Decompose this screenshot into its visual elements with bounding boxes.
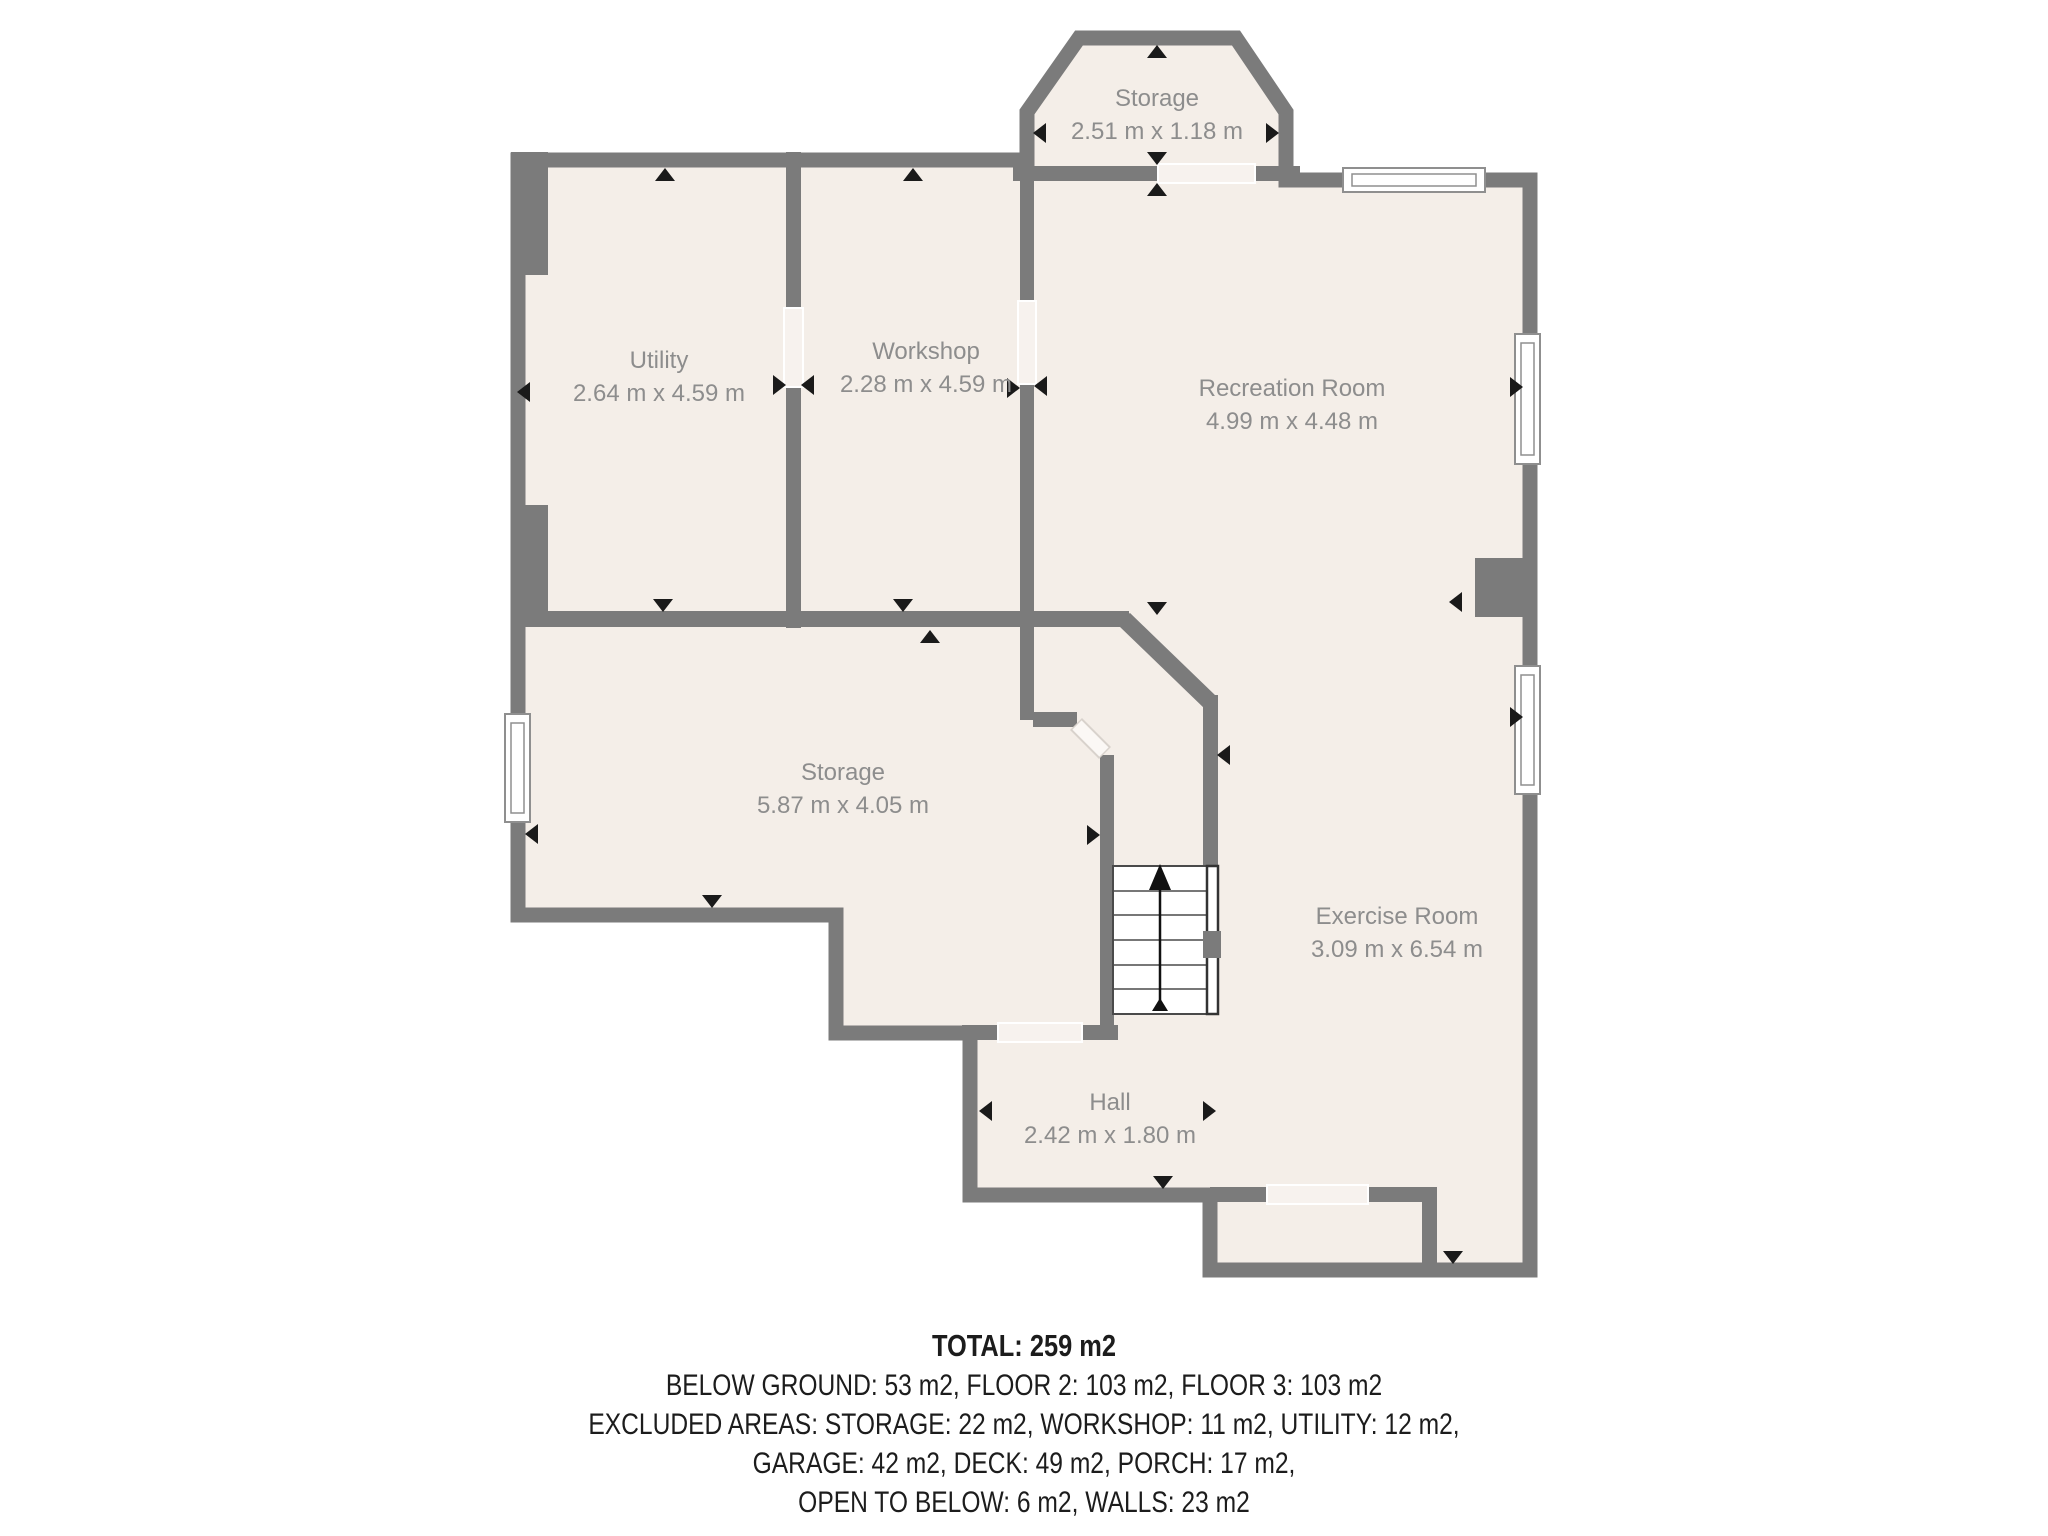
room-label: Workshop [872, 338, 980, 365]
room-dimensions: 2.42 m x 1.80 m [1024, 1122, 1196, 1149]
room-dimensions: 2.28 m x 4.59 m [840, 371, 1012, 398]
summary-excluded: EXCLUDED AREAS: STORAGE: 22 m2, WORKSHOP… [184, 1405, 1863, 1444]
door-opening [998, 1023, 1082, 1042]
wall-utility-workshop [786, 152, 801, 628]
door-opening [1018, 301, 1036, 384]
wall-stairs-right [1203, 695, 1218, 870]
room-label: Utility [630, 347, 689, 374]
window [1515, 666, 1540, 794]
wall-workshop-recreation [1020, 160, 1034, 720]
window [505, 714, 530, 822]
stair-rail-post [1203, 931, 1221, 958]
wall-horizontal-mid [511, 611, 1129, 627]
wall-stub [1033, 712, 1077, 727]
summary-total: TOTAL: 259 m2 [184, 1326, 1863, 1366]
room-dimensions: 2.64 m x 4.59 m [573, 380, 745, 407]
floorplan-page: Storage 2.51 m x 1.18 m Utility 2.64 m x… [0, 0, 2048, 1536]
room-label: Hall [1089, 1089, 1130, 1116]
area-summary: TOTAL: 259 m2 BELOW GROUND: 53 m2, FLOOR… [184, 1326, 1863, 1536]
summary-floors: BELOW GROUND: 53 m2, FLOOR 2: 103 m2, FL… [184, 1366, 1863, 1405]
wall-porch-right [1422, 1187, 1437, 1270]
staircase [1113, 864, 1221, 1014]
door-opening [1158, 164, 1255, 183]
summary-garage: GARAGE: 42 m2, DECK: 49 m2, PORCH: 17 m2… [184, 1444, 1863, 1483]
room-label: Recreation Room [1199, 375, 1386, 402]
window [1343, 168, 1485, 192]
wall-stairs-left [1100, 755, 1114, 1030]
room-label: Storage [1115, 85, 1199, 112]
door-opening [784, 308, 803, 387]
window [1515, 334, 1540, 464]
floorplan-drawing: Storage 2.51 m x 1.18 m Utility 2.64 m x… [0, 0, 2048, 1536]
wall-bay-bottom [1013, 166, 1300, 181]
room-dimensions: 2.51 m x 1.18 m [1071, 118, 1243, 145]
chimney-block [1475, 558, 1523, 617]
summary-open-below: OPEN TO BELOW: 6 m2, WALLS: 23 m2 [184, 1483, 1863, 1522]
room-label: Storage [801, 759, 885, 786]
room-dimensions: 4.99 m x 4.48 m [1206, 408, 1378, 435]
room-label: Exercise Room [1316, 903, 1479, 930]
room-dimensions: 3.09 m x 6.54 m [1311, 936, 1483, 963]
room-dimensions: 5.87 m x 4.05 m [757, 792, 929, 819]
door-opening [1267, 1185, 1368, 1204]
